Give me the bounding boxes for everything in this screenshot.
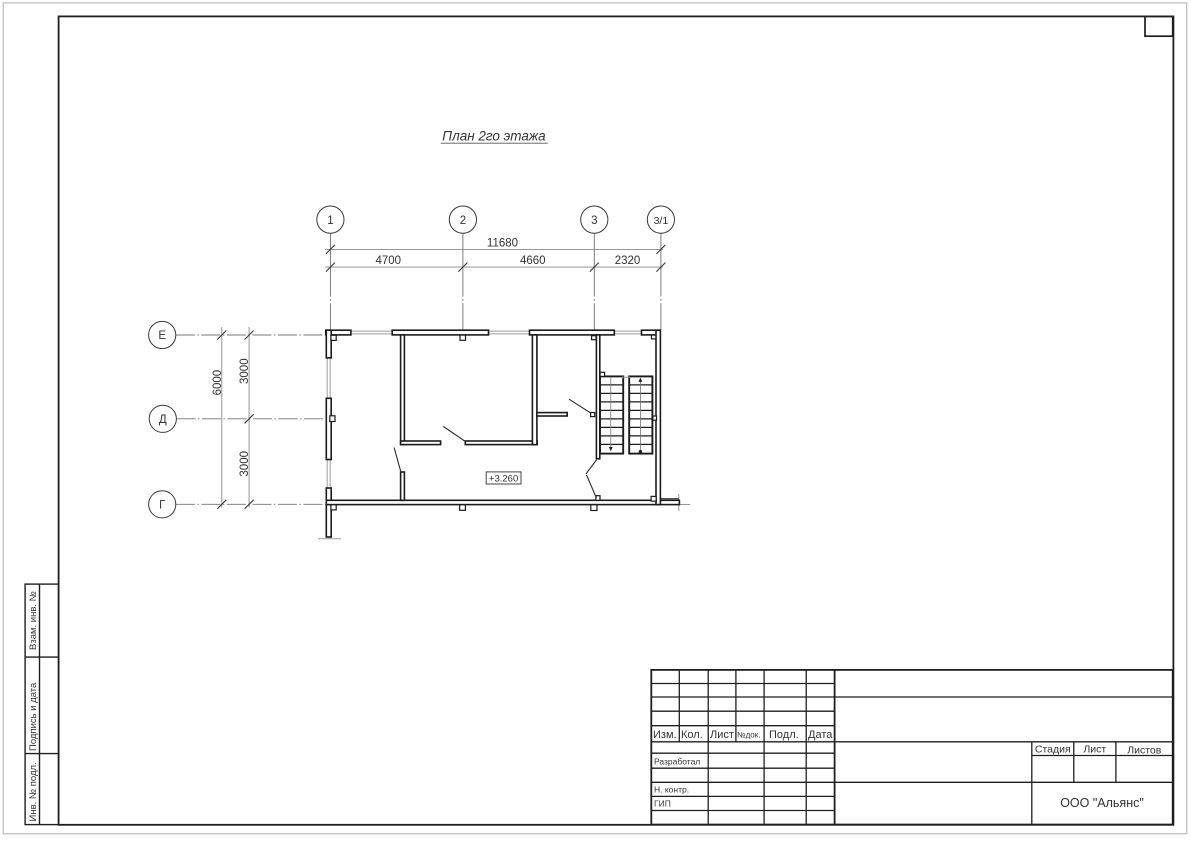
svg-text:2320: 2320 <box>615 255 641 267</box>
svg-text:План 2го этажа: План 2го этажа <box>442 129 546 144</box>
svg-text:2: 2 <box>460 215 466 227</box>
svg-text:Д: Д <box>159 414 167 426</box>
svg-text:Н. контр.: Н. контр. <box>654 785 689 795</box>
svg-text:Подл.: Подл. <box>769 729 799 741</box>
svg-text:Листов: Листов <box>1127 745 1162 757</box>
svg-text:6000: 6000 <box>212 370 224 396</box>
svg-text:4700: 4700 <box>376 255 402 267</box>
svg-text:Кол.: Кол. <box>681 729 703 741</box>
svg-text:Инв. № подл.: Инв. № подл. <box>28 762 39 821</box>
svg-text:Е: Е <box>158 330 166 342</box>
svg-text:3000: 3000 <box>239 358 251 384</box>
svg-text:Лист: Лист <box>1083 744 1106 756</box>
svg-text:Взам. инв. №: Взам. инв. № <box>28 591 39 650</box>
svg-text:Г: Г <box>159 500 166 512</box>
svg-text:ООО "Альянс": ООО "Альянс" <box>1060 796 1144 810</box>
svg-text:4660: 4660 <box>520 255 546 267</box>
svg-text:Стадия: Стадия <box>1035 744 1071 756</box>
svg-text:1: 1 <box>327 215 333 227</box>
svg-text:3/1: 3/1 <box>654 215 669 227</box>
svg-text:Дата: Дата <box>808 729 833 741</box>
svg-text:3000: 3000 <box>239 451 251 477</box>
svg-text:+3.260: +3.260 <box>489 473 518 484</box>
svg-text:№док.: №док. <box>737 731 760 740</box>
svg-text:3: 3 <box>591 215 597 227</box>
svg-text:Разработал: Разработал <box>654 757 700 767</box>
svg-text:11680: 11680 <box>487 237 518 249</box>
svg-text:Изм.: Изм. <box>653 729 677 741</box>
svg-text:Подпись и дата: Подпись и дата <box>28 682 39 751</box>
svg-text:Лист: Лист <box>710 729 734 741</box>
svg-text:ГИП: ГИП <box>654 799 671 809</box>
